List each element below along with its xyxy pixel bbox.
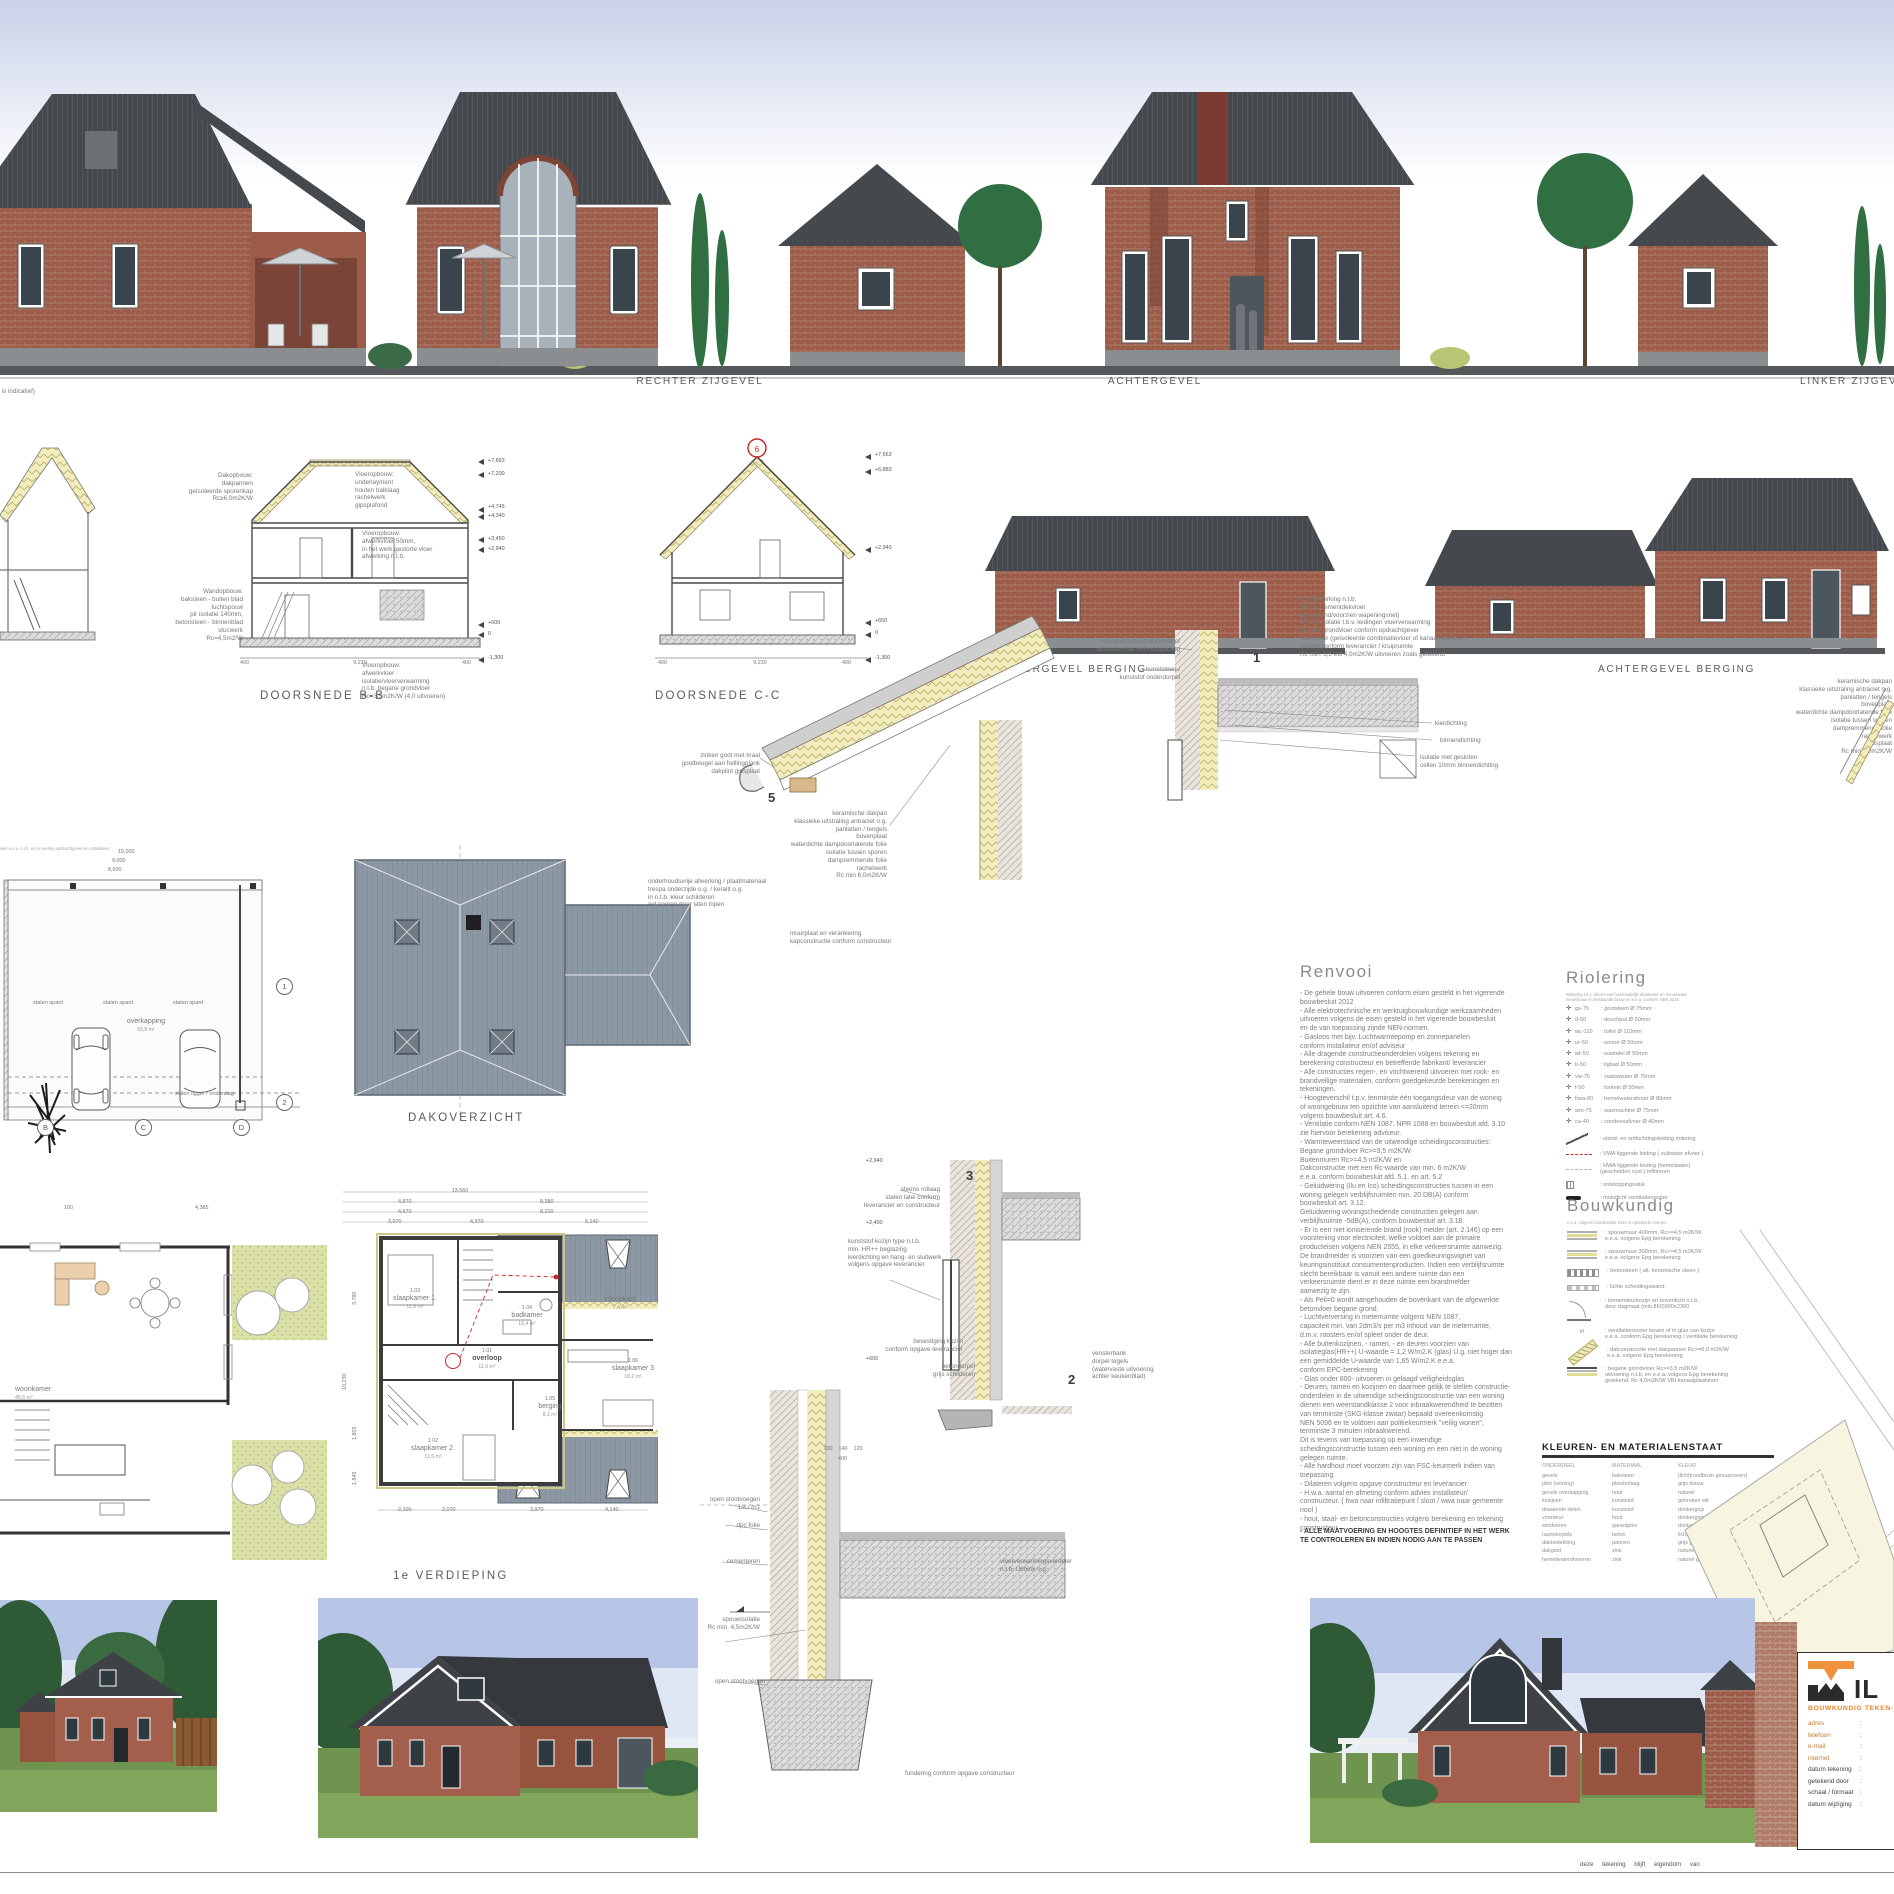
logo-letters: IL <box>1854 1678 1879 1701</box>
level-mark: +2,940 <box>488 546 505 552</box>
level-mark: +7,663 <box>488 458 505 464</box>
renvooi-bold: - ALLE MAATVOERING EN HOOGTES DEFINITIEF… <box>1300 1528 1518 1546</box>
level-mark: +2,940 <box>866 1158 883 1164</box>
level-mark: 0 <box>488 631 491 637</box>
dim: 9,230 <box>310 660 410 666</box>
plus-icon: ✛ <box>1566 1096 1575 1103</box>
riolering-item: ✛ b-50 : ligbad Ø 50mm <box>1566 1062 1796 1073</box>
riolering-item: ✛ wm-75 : wasmachine Ø 75mm <box>1566 1108 1796 1119</box>
riolering-symbol-row: : ontstoppingsstuk <box>1566 1181 1801 1189</box>
title-block: IL BOUWKUNDIG TEKEN- & A adres : 709 tel… <box>1797 1652 1894 1850</box>
dim: 5,140 <box>585 1219 599 1225</box>
label-rechter-zijgevel: RECHTER ZIJGEVEL <box>630 376 770 387</box>
plus-icon: ✛ <box>1566 1062 1575 1069</box>
room-slaapkamer2: 1.02 slaapkamer 2. 11,6 m² <box>398 1438 468 1460</box>
ground-line <box>0 366 1894 375</box>
riolering-item: ✛ wt-50 : wastafel Ø 50mm <box>1566 1051 1796 1062</box>
ann-isolatie-cellen: isolatie met gesloten cellen 10mm binnen… <box>1420 754 1515 770</box>
titleblock-fields: adres : 709 telefoon : 0 e-mail : info@t… <box>1808 1718 1894 1810</box>
riolering-item: ✛ f-50 : fontein Ø 50mm <box>1566 1085 1796 1096</box>
grid-bubble: D <box>233 1119 250 1136</box>
riolering-item: ✛ ur-50 : urinoir Ø 50mm <box>1566 1040 1796 1051</box>
titleblock-field: datum tekening : <box>1808 1764 1894 1776</box>
legend-symbol-icon <box>1566 1133 1588 1145</box>
plus-icon: ✛ <box>1566 1119 1575 1126</box>
ann-roof-stack: keramische dakpan klassieke uitstraling … <box>745 810 887 880</box>
siteplan-drawing <box>0 845 330 1565</box>
level-mark: +600 <box>866 1356 878 1362</box>
ann-stootvoegen2: open stootvoegen <box>690 1678 765 1686</box>
legend-symbol-icon <box>1566 1154 1592 1155</box>
riolering-symbol-row: : VWA liggende leiding ( vuilwater afvoe… <box>1566 1151 1801 1157</box>
detail-number-6: 6 <box>750 442 764 456</box>
renvooi-title: Renvooi <box>1300 962 1373 982</box>
dim: 15,000 <box>118 849 135 855</box>
elevation-rechter-zijgevel <box>405 92 672 366</box>
room-overloop: 1.01 overloop 11,6 m² <box>455 1348 519 1370</box>
elevation-building-left <box>0 94 366 366</box>
tree-icon <box>958 184 1042 366</box>
company-line: BOUWKUNDIG TEKEN- & A <box>1808 1705 1894 1712</box>
ann-d1-right: vloerafwerking n.t.b. 50mm, cementdekvlo… <box>1300 596 1475 658</box>
riolering-item: ✛ wc-110 : toilet Ø 110mm <box>1566 1029 1796 1040</box>
room-area: 65,8 m² <box>110 1027 182 1034</box>
ann-goot: zinken goot met kraal gootbeugel aan hel… <box>660 752 760 775</box>
dim: 1,805 <box>352 1427 358 1441</box>
level-mark: +3,450 <box>488 536 505 542</box>
dim: 4,140 <box>605 1507 619 1513</box>
stalen-spant-label: stalen spant <box>88 1000 148 1007</box>
render-2 <box>318 1598 698 1838</box>
detail-number-2: 2 <box>1068 1372 1075 1387</box>
plus-icon: ✛ <box>1566 1074 1575 1081</box>
titleblock-field: getekend door : <box>1808 1776 1894 1788</box>
marker-circle <box>445 1353 461 1369</box>
ann-rollaag: steens rollaag stalen latei conform leve… <box>845 1186 940 1209</box>
plus-icon: ✛ <box>1566 1051 1575 1058</box>
stalen-spant-label: stalen spant <box>18 1000 78 1007</box>
riolering-items: ✛ gs-75 : gootsteen Ø 75mm ✛ d-50 : douc… <box>1566 1006 1796 1130</box>
garden-areas <box>232 1245 327 1560</box>
level-mark: +7,663 <box>875 452 892 458</box>
drawing-sheet: { "sheet": { "masonry_note": "(metselwer… <box>0 0 1894 1894</box>
grid-bubble: 2 <box>276 1094 293 1111</box>
room-label: woonkamer <box>15 1386 51 1395</box>
room-label: overkapping <box>110 1018 182 1027</box>
render-1 <box>0 1600 217 1812</box>
ann-vloeropbouw-2: Vloeropbouw: afwerkvloer 50mm, in het we… <box>362 530 457 561</box>
titleblock-field: internet : www.te <box>1808 1753 1894 1765</box>
label-achtergevel-berging: ACHTERGEVEL BERGING <box>1598 664 1755 675</box>
dim: 4,370 <box>470 1219 484 1225</box>
brick-closeup <box>1755 1622 1797 1847</box>
ann-wandopbouw: Wandopbouw: baksteen - buiten blad lucht… <box>148 588 243 643</box>
plus-icon: ✛ <box>1566 1108 1575 1115</box>
ann-betondorpel: betondorpel grijs schilderen <box>900 1363 975 1379</box>
titleblock-field: schaal / formaat : <box>1808 1787 1894 1799</box>
riolering-item: ✛ ca-40 : condensafvoer Ø 40mm <box>1566 1119 1796 1130</box>
masonry-note: (metselwerk is indicatief) <box>0 388 96 396</box>
ann-stootvoegen: open stootvoegen 1st./ m1 <box>688 1496 760 1512</box>
plus-icon: ✛ <box>1566 1017 1575 1024</box>
room-slaapkamer1: 1.03 slaapkamer 1. 11,6 m² <box>380 1288 450 1310</box>
ann-onderdorpel: kunststeen / kunststof onderdorpel <box>1098 666 1180 682</box>
elevation-achtergevel <box>1090 92 1415 366</box>
level-mark: +4,340 <box>488 513 505 519</box>
dim: 1,845 <box>352 1472 358 1486</box>
dim: 4,670 <box>398 1209 412 1215</box>
logo: IL <box>1808 1661 1894 1701</box>
detail-number-5: 5 <box>768 790 775 805</box>
dim: 8,600 <box>108 867 122 873</box>
riolering-item: ✛ vw-75 : vaatwasser Ø 75mm <box>1566 1074 1796 1085</box>
detail-sill <box>938 1406 1072 1430</box>
titleblock-field: datum wijziging : <box>1808 1799 1894 1811</box>
level-mark: -1,300 <box>488 655 503 661</box>
detail-number-1: 1 <box>1253 650 1260 665</box>
bush-icon <box>368 343 412 369</box>
dim: 3,780 <box>352 1292 358 1306</box>
legend-symbol-icon <box>1566 1169 1592 1170</box>
label-achtergevel: ACHTERGEVEL <box>1085 376 1225 387</box>
ann-fundering: fundering conform opgave constructeur <box>905 1770 1075 1778</box>
dim: 100 <box>64 1205 73 1211</box>
ann-binnendichting: binnendichting <box>1440 737 1481 745</box>
riolering-item: ✛ hwa-80 : hemelwaterafvoer Ø 80mm <box>1566 1096 1796 1107</box>
plus-icon: ✛ <box>1566 1029 1575 1036</box>
ann-boeideel: onderhoudsvrije afwerking / plaatmateria… <box>648 878 798 909</box>
ann-vloeropbouw-1: Vloeropbouw: underlayment houten balklaa… <box>355 471 440 510</box>
tree-icon <box>1854 206 1886 366</box>
ann-bevestiging: bevestiging kozijn conform opgave levera… <box>845 1338 963 1354</box>
elevations-drawing <box>0 36 1894 386</box>
level-mark: +600 <box>488 620 500 626</box>
elevation-shed <box>778 164 975 366</box>
bouwkundig-title: Bouwkundig <box>1567 1196 1675 1216</box>
ann-cementeren: cementeren <box>700 1558 760 1566</box>
riolering-symbol-row: : HWA liggende leiding (hemelwater) (ges… <box>1566 1163 1801 1175</box>
label-1e-verdieping: 1e VERDIEPING <box>393 1570 509 1582</box>
dim: 8,210 <box>540 1209 554 1215</box>
room-badkamer: 1.04 badkamer 10,4 m² <box>495 1305 559 1327</box>
renvooi-text: - De gehele bouw uitvoeren conform eisen… <box>1300 990 1518 1533</box>
dim: 400 <box>240 660 249 666</box>
stalen-ligger-label: stalen ligger / onderslag <box>152 1091 234 1098</box>
company-logo-icon <box>1808 1661 1854 1701</box>
room-area: 48,5 m² <box>15 1395 33 1402</box>
ann-dpc: dpc folie <box>700 1522 760 1530</box>
plus-icon: ✛ <box>1566 1085 1575 1092</box>
plus-icon: ✛ <box>1566 1040 1575 1047</box>
dim: 9,000 <box>112 858 126 864</box>
ann-kierdichting: kierdichting <box>1435 720 1467 728</box>
riolering-item: ✛ gs-75 : gootsteen Ø 75mm <box>1566 1006 1796 1017</box>
titleblock-field: adres : 709 <box>1808 1718 1894 1730</box>
sheet-bottom-rule <box>0 1872 1894 1873</box>
stalen-spant-label: stalen spant <box>158 1000 218 1007</box>
dim: 8,380 <box>540 1199 554 1205</box>
plus-icon: ✛ <box>1566 1006 1575 1013</box>
dim: 4,870 <box>398 1199 412 1205</box>
bouwkundig-subtitle: e.e.a. volgens bouwbesluit 2012 en gelde… <box>1567 1220 1787 1225</box>
riolering-subtitle: Riolering t.b.v. afvoer van huishoudelij… <box>1566 992 1786 1003</box>
level-mark: +4,745 <box>488 504 505 510</box>
dim: 400 <box>820 1456 865 1462</box>
grid-bubble: 1 <box>276 978 293 995</box>
footer-note: deze tekening blijft eigendom van <box>1580 1861 1894 1868</box>
label-doorsnede-bb: DOORSNEDE B-B <box>260 690 385 702</box>
chimney-icon <box>466 915 481 930</box>
grid-bubble: C <box>135 1119 152 1136</box>
level-mark: +7,200 <box>488 471 505 477</box>
riolering-title: Riolering <box>1566 968 1647 988</box>
room-berging: 1.05 berging 8,1 m² <box>518 1396 582 1418</box>
ann-voordeur: voordeur in hout of kunststof uitvoeren … <box>1078 638 1180 654</box>
fence <box>176 1718 217 1766</box>
render-3 <box>1310 1598 1755 1843</box>
riolering-symbol-row: : stand- en ontluchtingsleiding riolerin… <box>1566 1133 1801 1145</box>
level-mark: +2,400 <box>866 1220 883 1226</box>
elevation-shed-right <box>1628 174 1778 366</box>
dim: 4,385 <box>195 1205 209 1211</box>
dim: 10,230 <box>342 1374 348 1391</box>
dim: 400 <box>462 660 471 666</box>
dim: 100 140 120 <box>798 1446 888 1452</box>
dim: 2,070 <box>442 1507 456 1513</box>
tree-icon <box>691 193 729 369</box>
riolering-item: ✛ d-50 : douchput Ø 50mm <box>1566 1017 1796 1028</box>
dim: 2,100 <box>398 1507 412 1513</box>
car-icon <box>72 1028 110 1110</box>
ann-dakopbouw: Dakopbouw: dakpannen geïsoleerde sporenk… <box>150 472 253 503</box>
detail-number-3: 3 <box>966 1168 973 1183</box>
titleblock-field: telefoon : 0 <box>1808 1730 1894 1742</box>
titleblock-field: e-mail : info@te <box>1808 1741 1894 1753</box>
label-dakoverzicht: DAKOVERZICHT <box>408 1112 525 1124</box>
detail-fragment-right <box>1840 680 1894 800</box>
label-linker-zijgevel: LINKER ZIJGEVEL <box>1800 376 1894 387</box>
legend-symbol-icon <box>1566 1181 1574 1189</box>
dim: 13,560 <box>400 1188 520 1194</box>
level-mark: +2,940 <box>875 545 892 551</box>
section-partial <box>0 448 95 640</box>
grid-bubble: B <box>37 1119 54 1136</box>
tree-icon <box>1537 153 1633 366</box>
ann-vloerverw: vloerverwarmingsverdeler n.t.b. Ubbink o… <box>1000 1558 1115 1574</box>
level-mark: +6,883 <box>875 467 892 473</box>
ann-kozijn: kunststof kozijn type n.t.b. min. HR++ b… <box>848 1238 963 1269</box>
dim: 3,970 <box>530 1507 544 1513</box>
ann-muurplaat: muurplaat en verankering kapconstructie … <box>790 930 925 946</box>
ann-vensterbank: vensterbank dorpel tegels (watervaste ui… <box>1092 1350 1187 1381</box>
dim: 3,070 <box>388 1219 402 1225</box>
